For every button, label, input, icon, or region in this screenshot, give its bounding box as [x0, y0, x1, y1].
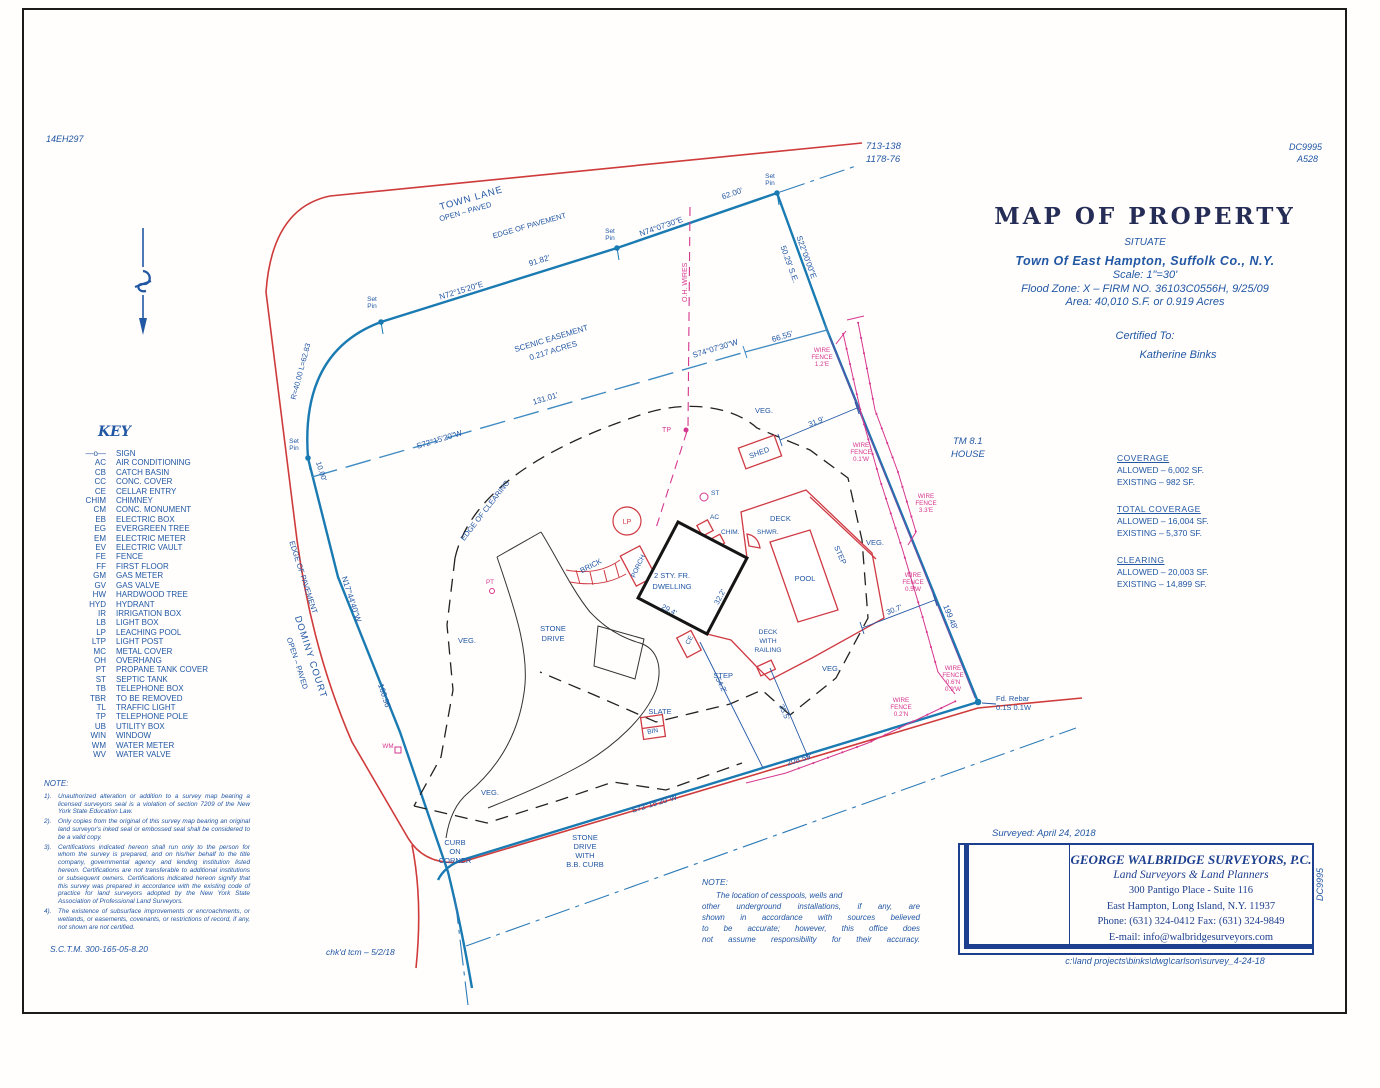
veg-label: VEG.: [755, 406, 773, 415]
wire-fence-label: FENCE: [811, 354, 832, 361]
oh-wires-label: O.H. WIRES: [682, 262, 689, 302]
water-meter-square: [395, 747, 401, 753]
bearing-s72-south: S72°15'20"W: [630, 792, 678, 815]
deck-railing-label: DECK: [759, 629, 778, 636]
chimney-label: CHIM.: [721, 529, 740, 536]
deck-railing-label: RAILING: [754, 647, 781, 654]
step-label: STEP: [832, 544, 848, 566]
set-pin-label: Pin: [367, 303, 377, 310]
curb-label: CURB: [444, 838, 465, 847]
set-pin-label: Pin: [605, 235, 615, 242]
dist-208-59: 208.59': [786, 751, 814, 767]
dist-91-82: 91.82': [528, 253, 552, 268]
shower-label: SHWR.: [757, 529, 779, 536]
oh-wires-line: [656, 207, 690, 528]
wire-fence-label: WIRE: [893, 697, 909, 704]
dist-62-00: 62.00': [721, 186, 745, 202]
brick-walk-label: BRICK: [579, 557, 604, 575]
tm-parcel-label: TM 8.1: [953, 436, 983, 447]
found-rebar-label: Fd. Rebar: [996, 694, 1030, 703]
wire-fence-label: 0.9'W: [945, 686, 961, 693]
edge-of-pavement-top: EDGE OF PAVEMENT: [492, 211, 568, 241]
pool-label: POOL: [795, 574, 816, 583]
town-lane-dominy-edge: [266, 143, 1082, 863]
found-rebar-point: [975, 699, 981, 705]
wire-fence-label: WIRE: [905, 572, 921, 579]
bin-label: BIN: [647, 727, 659, 736]
telephone-pole-label: TP: [662, 427, 671, 434]
bb-curb-label: WITH: [575, 851, 594, 860]
bearing-n17: N17°44'40"W: [340, 575, 363, 623]
curb-label: ON: [449, 847, 460, 856]
set-pin-label: Set: [605, 228, 615, 235]
deck-railing-label: WITH: [759, 638, 776, 645]
wire-fence-label: WIRE: [945, 665, 961, 672]
wire-fence-label: FENCE: [942, 672, 963, 679]
centerline-dashdot: [455, 166, 1076, 1005]
wire-fence-label: 0.6'N: [946, 679, 961, 686]
edge-of-pavement-left: EDGE OF PAVEMENT: [287, 540, 319, 615]
slate-label: SLATE: [648, 707, 671, 716]
wire-fence-label: WIRE: [814, 347, 830, 354]
dist-10-00: 10.00': [314, 460, 329, 483]
set-pin-label: Pin: [289, 445, 299, 452]
shower-outline: [747, 534, 760, 548]
wire-fence-label: 3.3'E: [919, 507, 933, 514]
survey-pins: [306, 191, 981, 705]
propane-cover-circle: [490, 589, 495, 594]
wire-fence-label: 0.5'W: [905, 586, 921, 593]
leaching-pool-label: LP: [623, 519, 632, 526]
set-pin-label: Set: [367, 296, 377, 303]
shed-label: SHED: [748, 445, 771, 461]
stone-drive-label: STONE: [540, 624, 566, 633]
septic-tank-label: ST: [711, 490, 719, 497]
fence-on-line-overlay: [830, 338, 975, 698]
wire-fence-label: 1.2'E: [815, 361, 829, 368]
dist-160-96: 160.96': [376, 682, 393, 710]
set-pin-label: Set: [289, 438, 299, 445]
dwelling-label: 2 STY. FR.: [654, 571, 690, 580]
dist-31-9: 31.9': [807, 414, 826, 428]
stone-driveway-outline: [446, 532, 659, 838]
north-arrow-icon: [135, 228, 151, 335]
telephone-pole-point: [684, 428, 688, 432]
dist-131-01: 131.01': [532, 390, 560, 406]
dist-30-7: 30.7': [885, 602, 904, 616]
wire-fence-label: 0.1'W: [853, 456, 869, 463]
set-pin-label: Pin: [765, 180, 775, 187]
found-rebar-label: 0.1S 0.1W: [996, 703, 1032, 712]
curb-label: CORNER: [439, 856, 472, 865]
tm-parcel-label: HOUSE: [951, 449, 985, 460]
bb-curb-label: B.B. CURB: [566, 860, 604, 869]
wire-fence-label: FENCE: [915, 500, 936, 507]
water-meter-label: WM: [382, 743, 393, 750]
wire-fence-label: WIRE: [918, 493, 934, 500]
edge-of-clearing-label: EDGE OF CLEARING: [459, 478, 512, 542]
deck-label: DECK: [770, 514, 791, 523]
survey-drawing: TOWN LANE OPEN – PAVED EDGE OF PAVEMENT …: [0, 0, 1380, 1088]
step-label: STEP: [713, 671, 733, 680]
septic-tank-circle: [700, 493, 708, 501]
veg-label: VEG.: [822, 664, 840, 673]
dwelling-label: DWELLING: [652, 582, 691, 591]
propane-label: PT: [486, 579, 494, 586]
dist-35-5: 35.5': [777, 703, 792, 722]
bb-curb-label: STONE: [572, 833, 598, 842]
ac-label: AC: [710, 514, 719, 521]
stone-drive-label: DRIVE: [542, 634, 565, 643]
wire-fence-label: 0.2'N: [894, 711, 909, 718]
survey-sheet: 14EH297 713-138 1178-76 DC9995 A528 DC99…: [0, 0, 1380, 1088]
veg-label: VEG.: [866, 538, 884, 547]
veg-label: VEG.: [481, 788, 499, 797]
veg-label: VEG.: [458, 636, 476, 645]
bb-curb-label: DRIVE: [574, 842, 597, 851]
wire-fence-label: FENCE: [902, 579, 923, 586]
wire-fence-label: FENCE: [850, 449, 871, 456]
bearing-s74w: S74°07'30"W: [691, 337, 739, 360]
set-pin-label: Set: [765, 173, 775, 180]
bearing-s72-easement: S72°15'20"W: [415, 428, 463, 451]
curve-data-label: R=40.00 L=62.83: [289, 342, 313, 400]
wire-fence-label: FENCE: [890, 704, 911, 711]
wire-fence-label: WIRE: [853, 442, 869, 449]
dominy-continuation-edge: [412, 845, 419, 968]
